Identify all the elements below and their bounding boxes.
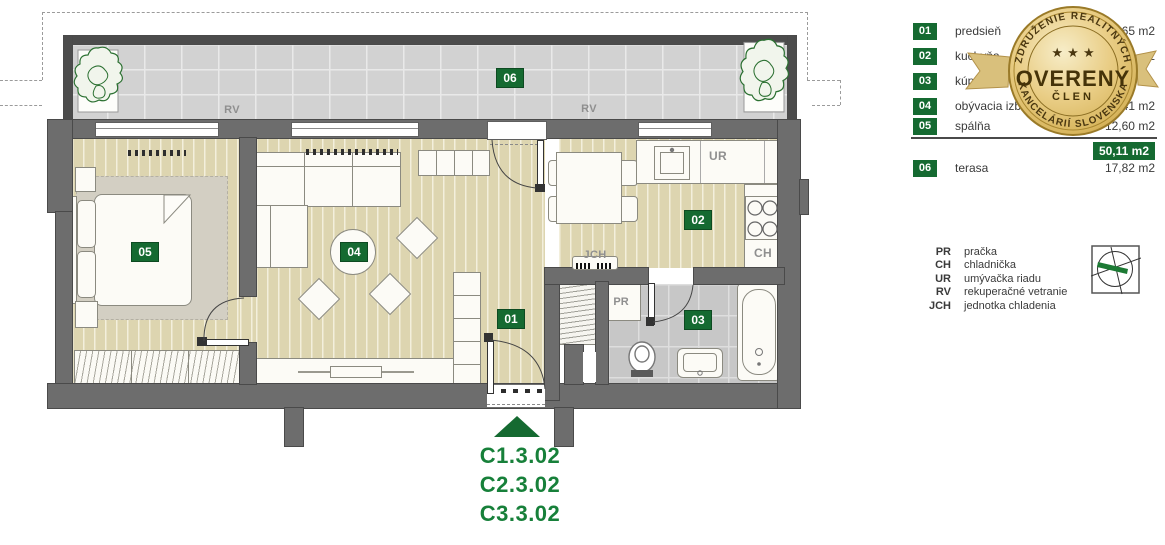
wall-bedroom-lower bbox=[240, 343, 256, 384]
seal-title: OVERENÝ bbox=[1016, 66, 1131, 91]
wall-right bbox=[778, 120, 800, 408]
abbreviation-label: rekuperačné vetranie bbox=[964, 286, 1067, 299]
bath-sink-basin bbox=[683, 353, 717, 372]
shelf-column bbox=[453, 272, 481, 388]
nightstand bbox=[75, 167, 96, 192]
abbreviation-label: chladnička bbox=[964, 259, 1016, 272]
wall-bottom bbox=[48, 384, 800, 408]
unit-code: C1.3.02 bbox=[450, 441, 590, 470]
room-badge-kitchen: 02 bbox=[684, 210, 712, 230]
seal-ribbon-right bbox=[1136, 51, 1158, 87]
bed-pillow bbox=[77, 200, 96, 248]
bathtub-inner bbox=[742, 289, 776, 375]
legend-badge: 04 bbox=[913, 98, 937, 115]
tv bbox=[330, 366, 382, 378]
door-pivot bbox=[484, 333, 493, 342]
boundary-dash bbox=[42, 12, 43, 80]
nightstand bbox=[75, 301, 98, 328]
legend-room-name: terasa bbox=[955, 161, 988, 175]
unit-code: C3.3.02 bbox=[450, 499, 590, 528]
wardrobe-divider bbox=[131, 350, 132, 386]
wall-stub-below bbox=[285, 408, 303, 446]
boundary-dash bbox=[0, 105, 42, 106]
wardrobe bbox=[74, 350, 244, 386]
abbreviation-label: pračka bbox=[964, 246, 997, 259]
hall-closet bbox=[559, 282, 596, 345]
bedroom-window bbox=[95, 122, 219, 137]
wall-kitchen-bath-b bbox=[694, 268, 784, 284]
room-badge-hall: 01 bbox=[497, 309, 525, 329]
kitchen-window bbox=[638, 122, 712, 137]
sofa-chaise bbox=[256, 205, 308, 268]
boundary-dash bbox=[807, 80, 840, 81]
bed-pillow bbox=[77, 251, 96, 298]
boundary-dash bbox=[812, 105, 840, 106]
abbreviation-key: CH bbox=[913, 259, 951, 272]
rv-label: RV bbox=[576, 103, 602, 115]
seal-stars: ★ ★ ★ bbox=[1051, 46, 1094, 61]
terrace-wall-right bbox=[788, 36, 796, 120]
abbreviation-key: PR bbox=[913, 246, 951, 259]
washing-machine-label: PR bbox=[613, 296, 628, 308]
door-leaf-entrance bbox=[487, 340, 494, 394]
legend-badge: 02 bbox=[913, 48, 937, 65]
legend-room-area: 17,82 m2 bbox=[1105, 161, 1155, 175]
wall-closet-bath bbox=[596, 282, 608, 384]
abbreviation-row: UR umývačka riadu bbox=[913, 273, 1067, 286]
apartment-floorplan-page: PR bbox=[0, 0, 1165, 545]
boundary-dash bbox=[0, 80, 42, 81]
jch-vent bbox=[576, 263, 591, 269]
wardrobe-divider bbox=[188, 350, 189, 386]
ur-label: UR bbox=[703, 149, 733, 163]
unit-codes: C1.3.02 C2.3.02 C3.3.02 bbox=[450, 441, 590, 528]
seal-subtitle: ČLEN bbox=[1052, 90, 1094, 103]
abbreviation-row: PR pračka bbox=[913, 246, 1067, 259]
room-badge-terrace: 06 bbox=[496, 68, 524, 88]
door-leaf-terrace bbox=[537, 140, 544, 188]
radiator bbox=[128, 150, 186, 156]
wall-left-upper bbox=[48, 120, 72, 212]
jch-label: JCH bbox=[577, 249, 613, 261]
boundary-dash bbox=[42, 12, 808, 13]
wall-right-jut bbox=[800, 180, 808, 214]
abbreviation-row: CH chladnička bbox=[913, 259, 1067, 272]
sofa-main bbox=[256, 152, 401, 207]
legend-panel: 01 predsieň 65 m2 02 kuchyňa 2 03 kúpeľň… bbox=[905, 18, 1161, 538]
seal-ribbon-left bbox=[966, 53, 1010, 89]
door-opening-floor bbox=[240, 296, 256, 343]
abbreviation-row: RV rekuperačné vetranie bbox=[913, 286, 1067, 299]
door-leaf-bedroom bbox=[203, 339, 249, 346]
sideboard bbox=[418, 150, 490, 176]
room-badge-bath: 03 bbox=[684, 310, 712, 330]
terrace-floor bbox=[70, 44, 790, 120]
closet-niche bbox=[583, 352, 596, 382]
terrace-door-dash bbox=[490, 144, 543, 145]
unit-code: C2.3.02 bbox=[450, 470, 590, 499]
kitchen-sink-basin bbox=[660, 152, 684, 174]
legend-badge: 01 bbox=[913, 23, 937, 40]
abbreviation-key: RV bbox=[913, 286, 951, 299]
abbreviation-row: JCH jednotka chladenia bbox=[913, 300, 1067, 313]
stove bbox=[745, 196, 778, 240]
room-badge-bedroom: 05 bbox=[131, 242, 159, 262]
radiator bbox=[306, 149, 398, 155]
door-pivot bbox=[197, 337, 207, 346]
entrance-arrow bbox=[494, 416, 540, 437]
legend-row: 06 terasa 17,82 m2 bbox=[913, 159, 1155, 177]
north-compass-icon bbox=[1091, 245, 1141, 295]
rv-label: RV bbox=[219, 104, 245, 116]
entrance-dash bbox=[487, 404, 545, 405]
certification-seal: ZDRUŽENIE REALITNÝCH KANCELÁRIÍ SLOVENSK… bbox=[960, 0, 1160, 145]
abbreviation-label: jednotka chladenia bbox=[964, 300, 1056, 313]
entrance-sill-hatch bbox=[489, 389, 543, 393]
door-pivot bbox=[535, 184, 545, 192]
terrace-wall-top bbox=[64, 36, 796, 44]
wall-closet-stub bbox=[565, 345, 583, 384]
dining-table bbox=[556, 152, 622, 224]
living-window bbox=[291, 122, 419, 137]
legend-badge: 05 bbox=[913, 118, 937, 135]
boundary-dash bbox=[807, 12, 808, 80]
legend-badge: 06 bbox=[913, 160, 937, 177]
room-badge-living: 04 bbox=[340, 242, 368, 262]
abbreviation-list: PR pračka CH chladnička UR umývačka riad… bbox=[913, 246, 1067, 313]
boundary-dash bbox=[840, 80, 841, 105]
wall-left-lower bbox=[56, 212, 72, 388]
abbreviation-label: umývačka riadu bbox=[964, 273, 1041, 286]
abbreviation-key: UR bbox=[913, 273, 951, 286]
ch-label: CH bbox=[750, 246, 776, 260]
abbreviation-key: JCH bbox=[913, 300, 951, 313]
legend-badge: 03 bbox=[913, 73, 937, 90]
terrace-wall-left bbox=[64, 36, 72, 120]
jch-vent bbox=[597, 263, 612, 269]
door-pivot bbox=[646, 317, 654, 326]
wall-hall-vert bbox=[545, 268, 559, 400]
wall-bedroom-upper bbox=[240, 138, 256, 296]
terrace-door-recess bbox=[487, 121, 547, 140]
